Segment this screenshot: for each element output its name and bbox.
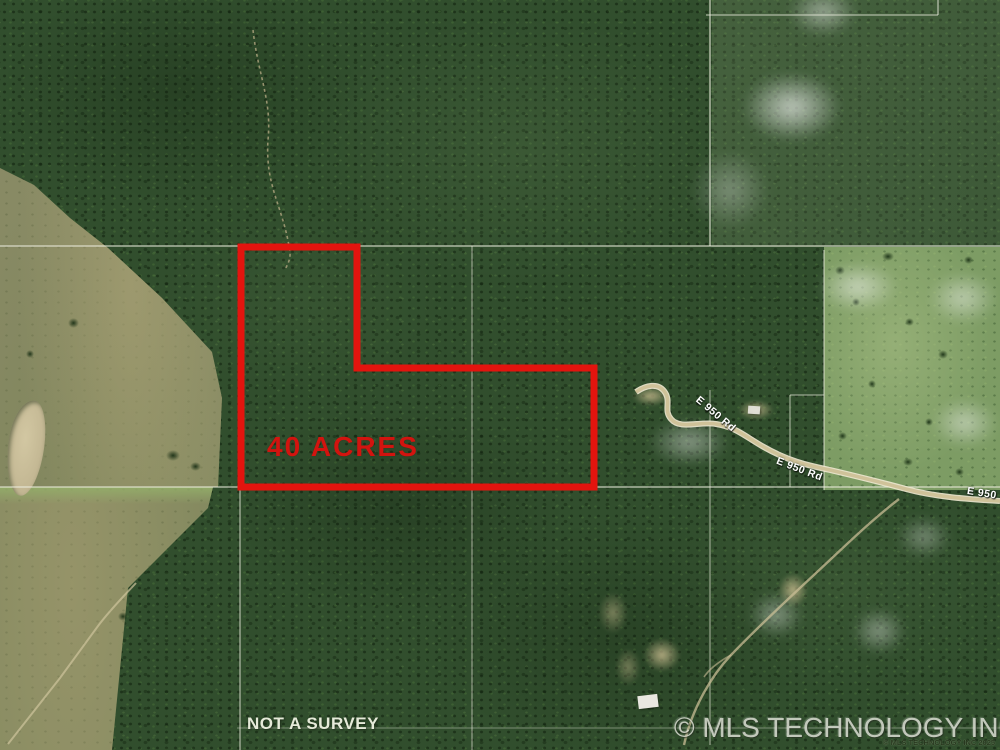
satellite-map: E 950 Rd E 950 Rd E 950 40 ACRES NOT A S… (0, 0, 1000, 750)
road-e950 (636, 386, 1000, 501)
acreage-label: 40 ACRES (267, 431, 419, 463)
forest-trail (253, 30, 290, 270)
not-a-survey-disclaimer: NOT A SURVEY (247, 714, 379, 734)
property-lines (0, 0, 1000, 750)
field-track (8, 583, 136, 744)
mls-watermark-small: © MLS TECHNOLOGY INC 2025 (883, 738, 995, 747)
driveway (684, 499, 899, 745)
road-e950-casing (636, 386, 1000, 501)
map-overlay (0, 0, 1000, 750)
